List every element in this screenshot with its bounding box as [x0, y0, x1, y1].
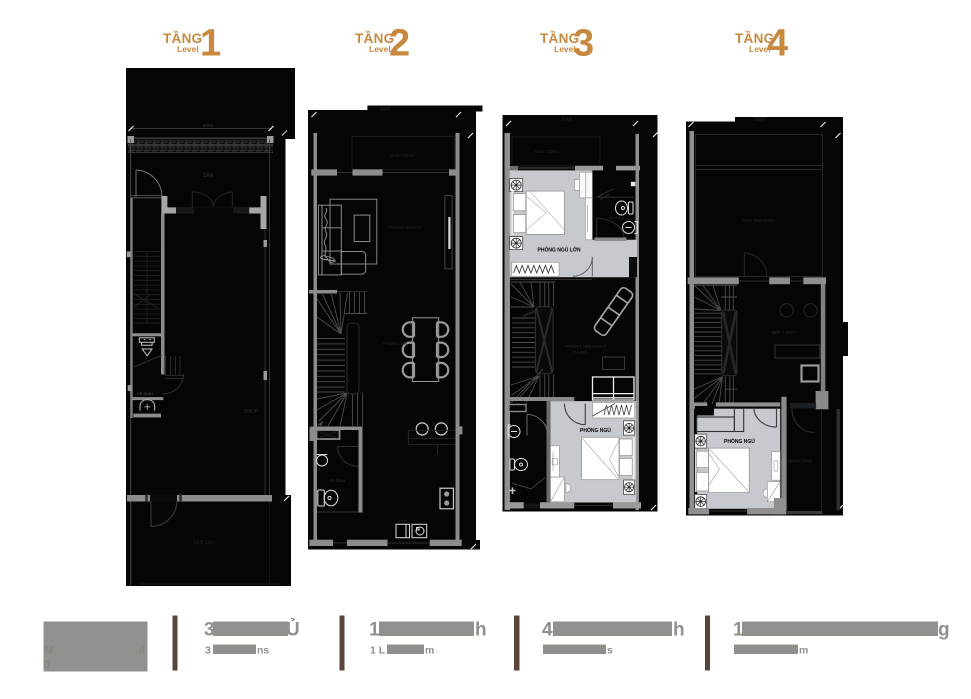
- svg-text:CHUNG: CHUNG: [572, 350, 588, 355]
- svg-text:h: h: [673, 620, 685, 641]
- svg-text:Level: Level: [369, 44, 391, 54]
- svg-text:Ủ: Ủ: [286, 619, 300, 641]
- svg-text:g: g: [938, 620, 950, 641]
- svg-text:PHÒNG NGỦ LỚN: PHÒNG NGỦ LỚN: [538, 246, 582, 254]
- svg-text:1 L: 1 L: [370, 645, 386, 657]
- svg-text:VỆ SINH: VỆ SINH: [609, 216, 624, 221]
- svg-text:BAN CÔNG: BAN CÔNG: [390, 152, 415, 158]
- svg-text:SÂN THƯỢNG: SÂN THƯỢNG: [742, 217, 775, 224]
- svg-text:PHÒNG NGỦ: PHÒNG NGỦ: [724, 437, 755, 445]
- svg-text:4: 4: [767, 23, 788, 65]
- svg-text:SÂN SAU: SÂN SAU: [193, 539, 215, 546]
- svg-text:BAN CÔNG: BAN CÔNG: [535, 148, 560, 154]
- svg-text:3: 3: [573, 23, 594, 65]
- svg-text:5000: 5000: [380, 107, 391, 112]
- svg-text:M: M: [43, 644, 54, 656]
- svg-text:ns: ns: [257, 645, 269, 657]
- svg-text:5000: 5000: [203, 123, 214, 128]
- svg-text:BẾP + GIẶT: BẾP + GIẶT: [772, 329, 797, 335]
- svg-text:PHÒNG KHÁCH: PHÒNG KHÁCH: [388, 224, 422, 230]
- svg-text:5000: 5000: [755, 117, 766, 122]
- svg-text:h: h: [475, 620, 487, 641]
- svg-text:SÂN: SÂN: [203, 172, 214, 179]
- svg-text:PHÒNG SINH HOẠT: PHÒNG SINH HOẠT: [566, 344, 607, 349]
- svg-text:3: 3: [205, 645, 211, 657]
- svg-text:m: m: [799, 645, 808, 657]
- svg-text:m: m: [425, 645, 434, 657]
- svg-text:s: s: [607, 645, 613, 657]
- svg-text:Level: Level: [177, 44, 199, 54]
- svg-text:BAN CÔNG: BAN CÔNG: [789, 459, 813, 464]
- svg-text:d: d: [139, 644, 145, 656]
- svg-text:1: 1: [200, 23, 221, 65]
- svg-text:0: 0: [44, 659, 50, 671]
- svg-text:VỆ SINH: VỆ SINH: [137, 391, 153, 396]
- svg-text:PHÒNG ĂN: PHÒNG ĂN: [383, 340, 407, 346]
- svg-text:L: L: [43, 619, 54, 639]
- svg-text:5000: 5000: [562, 117, 573, 122]
- svg-text:PHÒNG NGỦ: PHÒNG NGỦ: [580, 426, 611, 434]
- svg-text:1: 1: [369, 620, 380, 641]
- svg-text:2: 2: [389, 23, 410, 65]
- svg-text:4: 4: [542, 620, 553, 641]
- svg-text:BẾP: BẾP: [398, 518, 407, 524]
- svg-text:VỆ SINH: VỆ SINH: [329, 478, 345, 483]
- svg-text:SHOP: SHOP: [244, 409, 259, 415]
- svg-text:3: 3: [204, 620, 215, 641]
